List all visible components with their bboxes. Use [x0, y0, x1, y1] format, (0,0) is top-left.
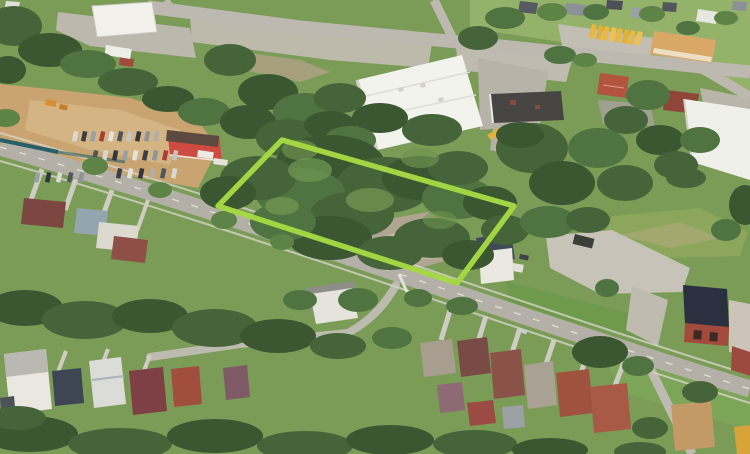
house-navy-roof-row-b	[52, 368, 84, 406]
house-terracotta-row-b	[171, 366, 202, 407]
house-maroon-row-b	[129, 367, 167, 415]
tree-single	[537, 3, 567, 21]
street-tree	[446, 297, 478, 315]
house-red-small-row-c	[467, 400, 496, 426]
house-bluegray-row-b	[89, 357, 126, 408]
tree-cluster	[666, 168, 706, 188]
house-graytan-row-c	[420, 339, 456, 377]
street-tree	[404, 289, 432, 307]
tree-highlight	[265, 197, 299, 215]
tree-highlight	[346, 188, 394, 212]
tree-single	[573, 53, 597, 67]
tree-cluster	[458, 26, 498, 50]
commercial-building-top-left	[92, 2, 157, 37]
tree-cluster	[314, 83, 366, 113]
street-tree	[622, 356, 654, 376]
lawn-tree-round	[595, 279, 619, 297]
tree-cluster	[204, 44, 256, 76]
house-mauve-row-b	[223, 365, 250, 400]
tree-single	[338, 288, 378, 312]
rust-patch	[510, 100, 516, 105]
tree-single	[676, 21, 700, 35]
house-top-edge	[564, 3, 586, 16]
red-roof-house-top	[597, 73, 629, 98]
house-maroon-row-a	[21, 198, 66, 228]
street-tree	[148, 182, 172, 198]
tree-single	[485, 7, 525, 29]
house-top-edge	[732, 1, 747, 11]
tree-cluster	[604, 106, 648, 134]
tree-highlight	[288, 158, 332, 182]
tree-cluster	[402, 114, 462, 146]
house-top-edge	[662, 2, 677, 12]
tree-highlight	[401, 148, 439, 168]
shed-gray-row-c	[502, 405, 525, 429]
tree-single	[639, 6, 665, 22]
aerial-imagery-viewport[interactable]	[0, 0, 750, 454]
house-maroon-row-c	[457, 337, 491, 377]
tree-cluster	[529, 161, 595, 205]
tree-cluster	[167, 419, 263, 453]
tree-cluster	[310, 333, 366, 359]
house-redbrown-row-a	[111, 236, 148, 263]
fire-station-brick-front	[684, 323, 729, 346]
tree-cluster	[636, 125, 684, 155]
street-tree	[270, 234, 294, 250]
tree-cluster	[240, 319, 316, 353]
aerial-scene	[0, 0, 750, 454]
tree-over-road	[572, 336, 628, 368]
tree-cluster	[711, 219, 741, 241]
tree-cluster	[496, 122, 544, 148]
fire-station-garage-door	[693, 330, 702, 340]
tree-cluster	[680, 127, 720, 153]
house-brown-row-c	[490, 349, 525, 399]
house-mauve-small-row-c	[437, 382, 465, 413]
tree-highlight	[423, 211, 457, 229]
charcoal-industrial-building	[490, 91, 564, 123]
fire-station-garage-door	[709, 332, 718, 342]
tree-single	[372, 327, 412, 349]
house-top-edge	[606, 0, 623, 10]
fire-station-roof	[683, 285, 729, 328]
street-tree	[82, 157, 108, 175]
tree-cluster	[566, 207, 610, 233]
tree-cluster	[597, 165, 653, 201]
street-tree	[682, 381, 718, 403]
tree-single	[544, 46, 576, 64]
tree-single	[714, 11, 738, 25]
tree-single	[632, 417, 668, 439]
tree-single	[283, 290, 317, 310]
tree-cluster	[568, 128, 628, 168]
rust-patch	[535, 105, 540, 109]
house-terracotta2-row-c	[590, 383, 631, 433]
tree-cluster	[346, 425, 434, 454]
tree-cluster	[626, 80, 670, 110]
house-gray-row-c	[524, 361, 557, 409]
house-terracotta-row-c	[556, 369, 593, 417]
tree-single	[583, 4, 609, 20]
house-tan-bottom-right	[671, 401, 715, 451]
